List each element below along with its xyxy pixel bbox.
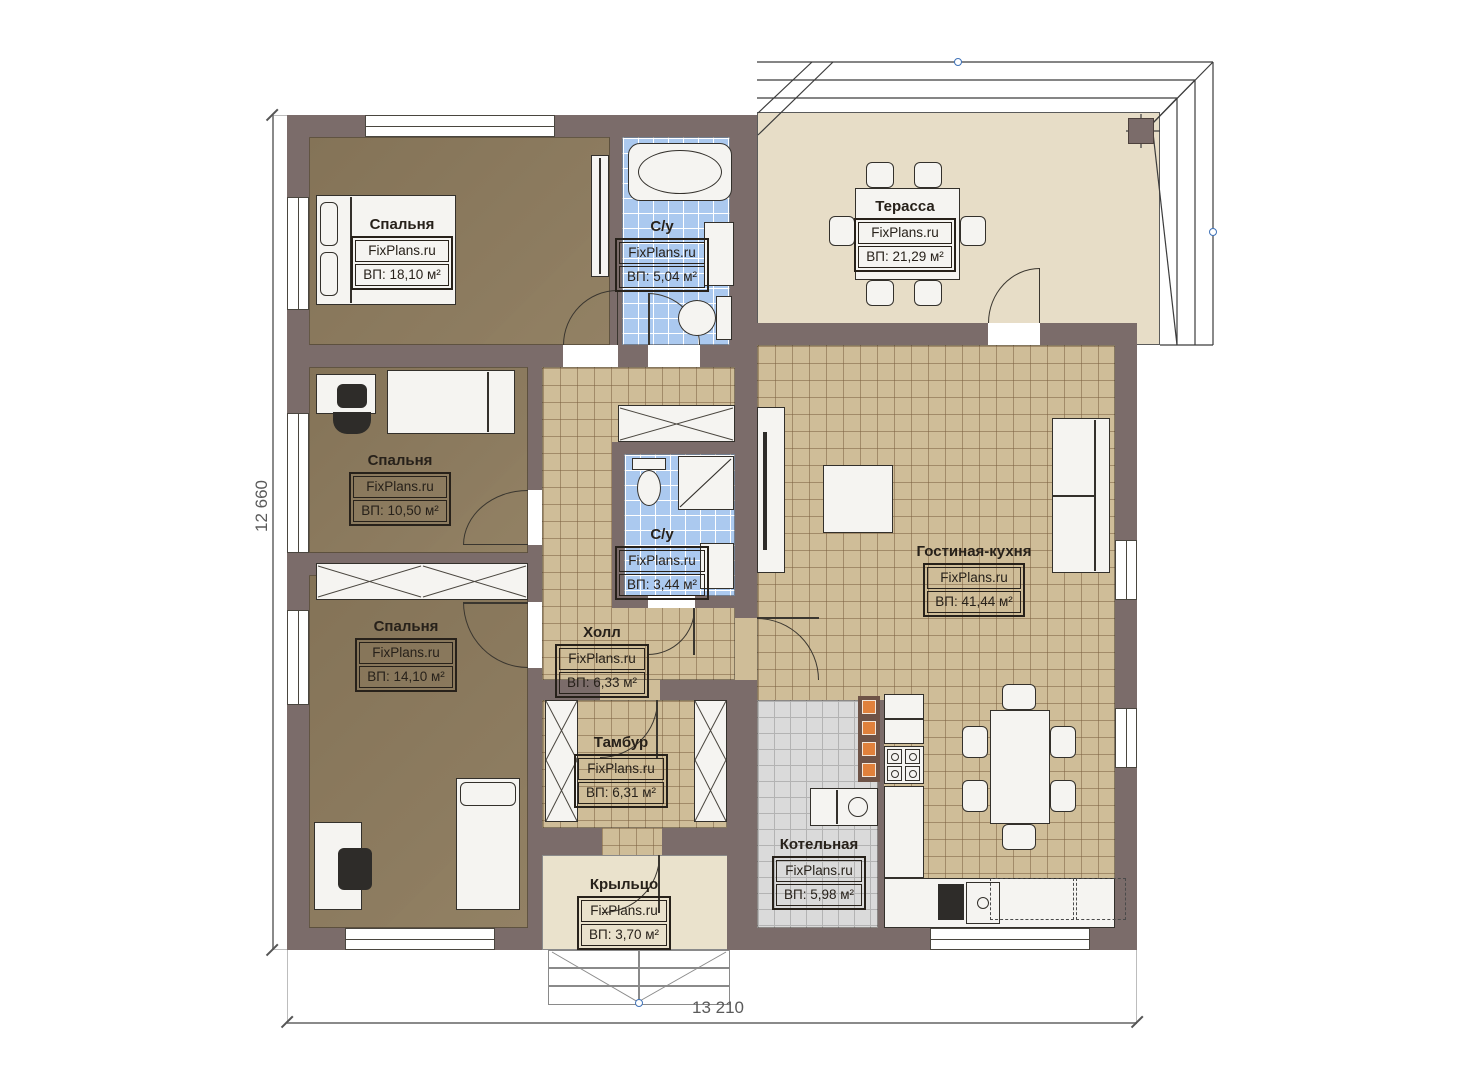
kitchen-drainer: [938, 884, 964, 920]
coffee-table: [823, 465, 893, 533]
room-name: Терасса: [875, 198, 934, 215]
room-area: ВП: 21,29 м²: [858, 246, 952, 268]
wall: [1040, 323, 1137, 345]
room-name: С/у: [650, 218, 673, 235]
chair: [1002, 824, 1036, 850]
chair: [866, 162, 894, 188]
room-area: ВП: 6,33 м²: [559, 672, 645, 694]
brand-watermark: FixPlans.ru: [578, 758, 664, 780]
door-opening: [528, 602, 542, 668]
room-label-bedroom-1: Спальня FixPlans.ru ВП: 18,10 м²: [346, 216, 458, 290]
window: [365, 115, 555, 137]
extension-line: [1136, 950, 1137, 1022]
fridge-line: [885, 718, 923, 720]
wall: [612, 442, 735, 454]
porch-step-divider: [638, 950, 640, 1004]
handle-dot: [954, 58, 962, 66]
room-info-box: FixPlans.ru ВП: 5,04 м²: [615, 238, 709, 292]
brand-watermark: FixPlans.ru: [355, 240, 449, 262]
chair: [962, 780, 988, 812]
brand-watermark: FixPlans.ru: [559, 648, 645, 670]
tv-unit: [757, 407, 785, 573]
room-label-bathroom-1: С/у FixPlans.ru ВП: 5,04 м²: [612, 218, 712, 292]
bed-fold-line: [487, 372, 489, 432]
oven-module: [862, 742, 876, 756]
window: [1115, 540, 1137, 600]
floor-plan: Спальня FixPlans.ru ВП: 18,10 м² С/у Fix…: [0, 0, 1473, 1080]
extension-line: [272, 949, 287, 950]
door-leaf: [1039, 268, 1041, 323]
wall: [662, 828, 727, 855]
room-label-boiler-room: Котельная FixPlans.ru ВП: 5,98 м²: [758, 836, 880, 910]
wall: [1115, 345, 1137, 950]
extension-line: [287, 950, 288, 1022]
office-chair: [338, 848, 372, 890]
room-area: ВП: 3,70 м²: [581, 924, 667, 946]
window: [1115, 708, 1137, 768]
upper-cabinet-dashed: [1076, 878, 1126, 920]
oven-module: [862, 721, 876, 735]
window: [287, 413, 309, 553]
wall: [727, 680, 757, 928]
brand-watermark: FixPlans.ru: [776, 860, 862, 882]
room-info-box: FixPlans.ru ВП: 3,44 м²: [615, 546, 709, 600]
door-leaf: [757, 617, 819, 619]
chair: [1050, 780, 1076, 812]
brand-watermark: FixPlans.ru: [353, 476, 447, 498]
door-opening: [735, 618, 757, 680]
pillow: [320, 202, 338, 246]
wall: [530, 700, 542, 928]
room-info-box: FixPlans.ru ВП: 5,98 м²: [772, 856, 866, 910]
shower-tray: [678, 456, 734, 510]
door-opening: [528, 490, 542, 545]
window: [287, 197, 309, 310]
door-leaf: [648, 293, 650, 345]
brand-watermark: FixPlans.ru: [619, 550, 705, 572]
burner: [887, 749, 902, 764]
wall: [735, 345, 757, 618]
boiler-dial: [848, 797, 868, 817]
brand-watermark: FixPlans.ru: [927, 567, 1021, 589]
extension-line: [272, 115, 287, 116]
room-label-bathroom-2: С/у FixPlans.ru ВП: 3,44 м²: [612, 526, 712, 600]
wardrobe: [694, 700, 727, 822]
room-area: ВП: 10,50 м²: [353, 500, 447, 522]
room-name: Спальня: [368, 452, 433, 469]
wall: [757, 323, 988, 345]
chair: [914, 280, 942, 306]
burner: [905, 766, 920, 781]
room-info-box: FixPlans.ru ВП: 18,10 м²: [351, 236, 453, 290]
dimension-line-vertical: [272, 115, 274, 950]
room-info-box: FixPlans.ru ВП: 6,33 м²: [555, 644, 649, 698]
room-area: ВП: 5,98 м²: [776, 884, 862, 906]
door-leaf: [463, 602, 528, 604]
toilet-tank: [716, 296, 732, 340]
room-area: ВП: 6,31 м²: [578, 782, 664, 804]
window: [930, 928, 1090, 950]
oven-module: [862, 763, 876, 777]
room-name: Котельная: [780, 836, 859, 853]
door-leaf: [693, 608, 695, 655]
upper-cabinet-dashed: [990, 878, 1074, 920]
dimension-width-label: 13 210: [658, 998, 778, 1018]
pillow: [320, 252, 338, 296]
wall: [309, 345, 563, 367]
room-info-box: FixPlans.ru ВП: 6,31 м²: [574, 754, 668, 808]
chair: [914, 162, 942, 188]
wall: [730, 137, 757, 345]
wardrobe-line: [599, 158, 601, 274]
chair: [1050, 726, 1076, 758]
wall: [542, 828, 602, 855]
wardrobe: [618, 405, 735, 442]
window: [345, 928, 495, 950]
oven-module: [862, 700, 876, 714]
brand-watermark: FixPlans.ru: [619, 242, 705, 264]
room-area: ВП: 18,10 м²: [355, 264, 449, 286]
terrace-door-opening: [988, 323, 1040, 345]
dimension-height-label: 12 660: [252, 461, 272, 551]
stool: [333, 412, 371, 434]
door-opening: [648, 345, 700, 367]
toilet-bowl: [637, 470, 661, 506]
handle-dot: [1209, 228, 1217, 236]
wall: [528, 367, 542, 490]
floor-entry-threshold: [602, 828, 662, 855]
room-info-box: FixPlans.ru ВП: 41,44 м²: [923, 563, 1025, 617]
dimension-line-horizontal: [287, 1022, 1137, 1024]
sofa-cushion-line: [1053, 495, 1094, 497]
door-leaf: [463, 544, 528, 546]
door-opening: [563, 345, 618, 367]
terrace-column: [1128, 118, 1154, 144]
room-info-box: FixPlans.ru ВП: 21,29 м²: [854, 218, 956, 272]
room-area: ВП: 14,10 м²: [359, 666, 453, 688]
window: [287, 610, 309, 705]
room-area: ВП: 41,44 м²: [927, 591, 1021, 613]
room-name: Крыльцо: [590, 876, 658, 893]
room-info-box: FixPlans.ru ВП: 3,70 м²: [577, 896, 671, 950]
burner: [887, 766, 902, 781]
room-name: Спальня: [374, 618, 439, 635]
room-label-vestibule: Тамбур FixPlans.ru ВП: 6,31 м²: [566, 734, 676, 808]
pillow: [460, 782, 516, 806]
bathtub-basin: [638, 150, 722, 194]
room-area: ВП: 5,04 м²: [619, 266, 705, 288]
tv: [763, 432, 767, 550]
brand-watermark: FixPlans.ru: [359, 642, 453, 664]
brand-watermark: FixPlans.ru: [581, 900, 667, 922]
toilet-tank: [632, 458, 666, 470]
burner: [905, 749, 920, 764]
room-label-hall: Холл FixPlans.ru ВП: 6,33 м²: [550, 624, 654, 698]
toilet-bowl: [678, 300, 716, 336]
room-label-terrace: Терасса FixPlans.ru ВП: 21,29 м²: [840, 198, 970, 272]
chair: [1002, 684, 1036, 710]
sofa-backrest-line: [1094, 420, 1096, 571]
wall: [528, 575, 542, 602]
brand-watermark: FixPlans.ru: [858, 222, 952, 244]
boiler-line: [836, 790, 838, 824]
wardrobe: [316, 563, 528, 600]
wall: [618, 345, 648, 367]
chair: [866, 280, 894, 306]
room-area: ВП: 3,44 м²: [619, 574, 705, 596]
kitchen-counter: [884, 786, 924, 878]
wall: [555, 115, 757, 137]
chair: [962, 726, 988, 758]
room-name: Гостиная-кухня: [917, 543, 1032, 560]
room-label-bedroom-2: Спальня FixPlans.ru ВП: 10,50 м²: [336, 452, 464, 526]
room-name: Тамбур: [594, 734, 648, 751]
room-name: С/у: [650, 526, 673, 543]
room-info-box: FixPlans.ru ВП: 14,10 м²: [355, 638, 457, 692]
door-leaf: [617, 290, 619, 345]
room-name: Спальня: [370, 216, 435, 233]
room-info-box: FixPlans.ru ВП: 10,50 м²: [349, 472, 451, 526]
room-name: Холл: [583, 624, 621, 641]
room-label-porch: Крыльцо FixPlans.ru ВП: 3,70 м²: [562, 876, 686, 950]
dining-table: [990, 710, 1050, 824]
bed-single: [387, 370, 515, 434]
room-label-bedroom-3: Спальня FixPlans.ru ВП: 14,10 м²: [342, 618, 470, 692]
handle-dot: [635, 999, 643, 1007]
room-label-living-kitchen: Гостиная-кухня FixPlans.ru ВП: 41,44 м²: [898, 543, 1050, 617]
desk-chair: [337, 384, 367, 408]
